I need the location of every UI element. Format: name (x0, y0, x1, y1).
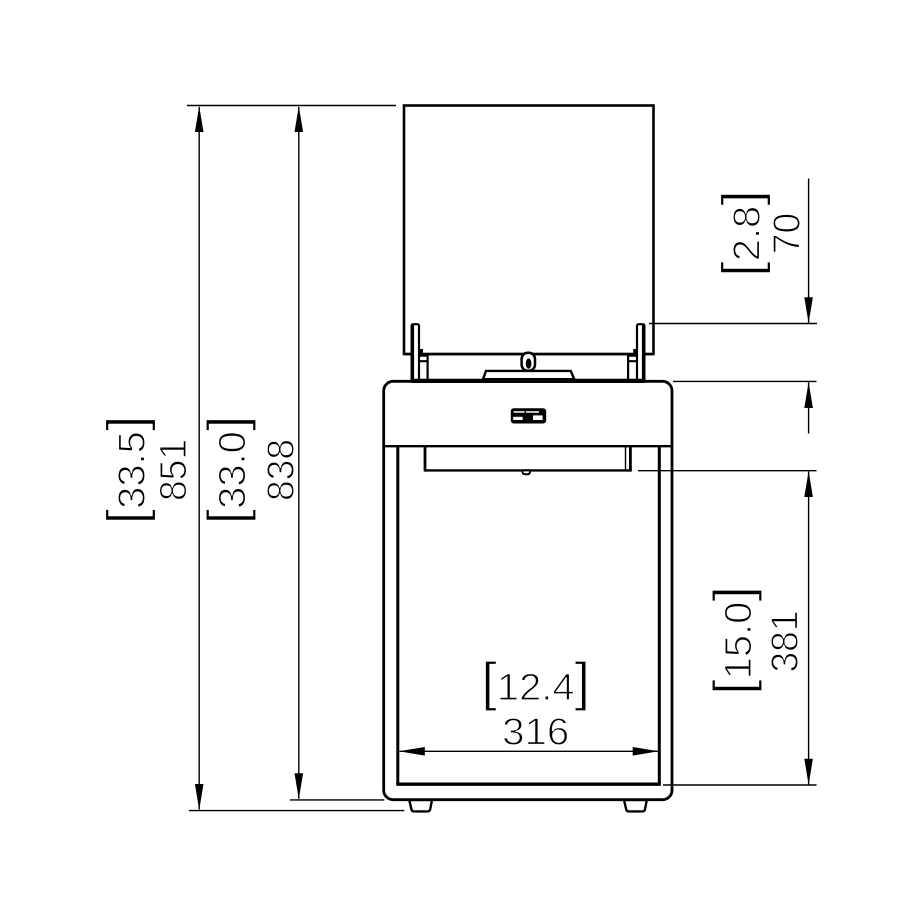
svg-text:316: 316 (502, 712, 569, 754)
svg-text:381: 381 (763, 610, 805, 672)
svg-text:70: 70 (765, 213, 807, 254)
svg-text:838: 838 (259, 439, 301, 501)
svg-text:851: 851 (152, 439, 194, 501)
